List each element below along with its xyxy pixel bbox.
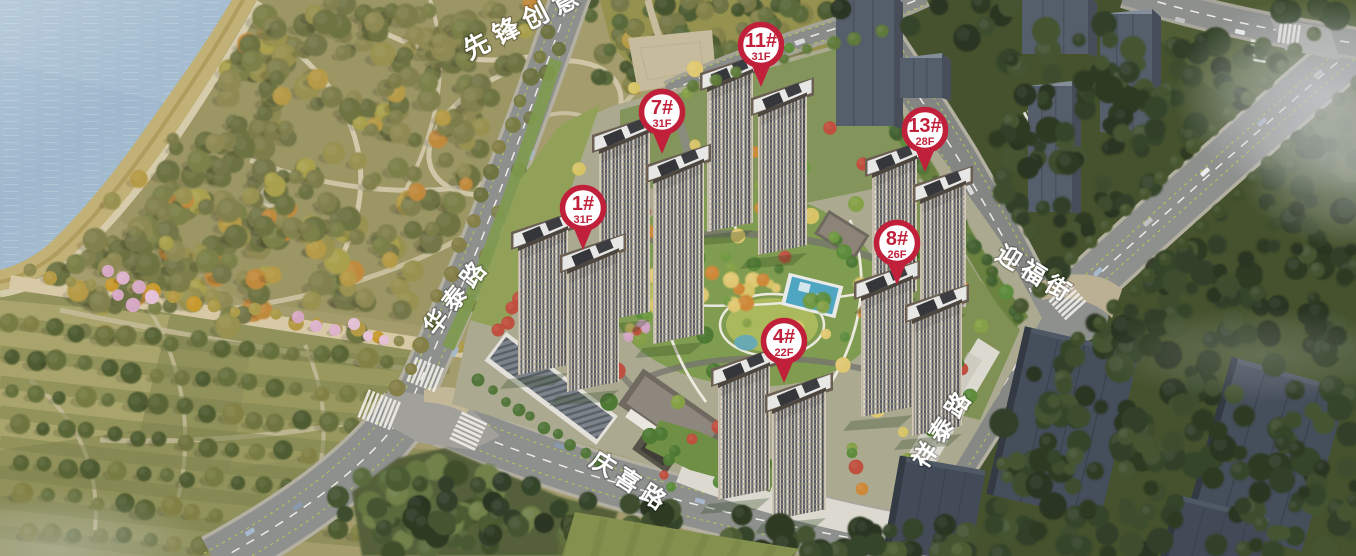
svg-text:8#: 8# xyxy=(886,228,908,250)
svg-text:7#: 7# xyxy=(651,97,673,119)
svg-text:28F: 28F xyxy=(916,136,935,148)
svg-text:31F: 31F xyxy=(653,118,672,130)
svg-text:22F: 22F xyxy=(775,347,794,359)
svg-text:13#: 13# xyxy=(908,115,941,137)
svg-text:1#: 1# xyxy=(572,193,594,215)
svg-text:31F: 31F xyxy=(752,51,771,63)
svg-text:11#: 11# xyxy=(745,30,777,52)
svg-text:26F: 26F xyxy=(888,249,907,261)
svg-text:31F: 31F xyxy=(574,214,593,226)
svg-text:4#: 4# xyxy=(773,326,795,348)
